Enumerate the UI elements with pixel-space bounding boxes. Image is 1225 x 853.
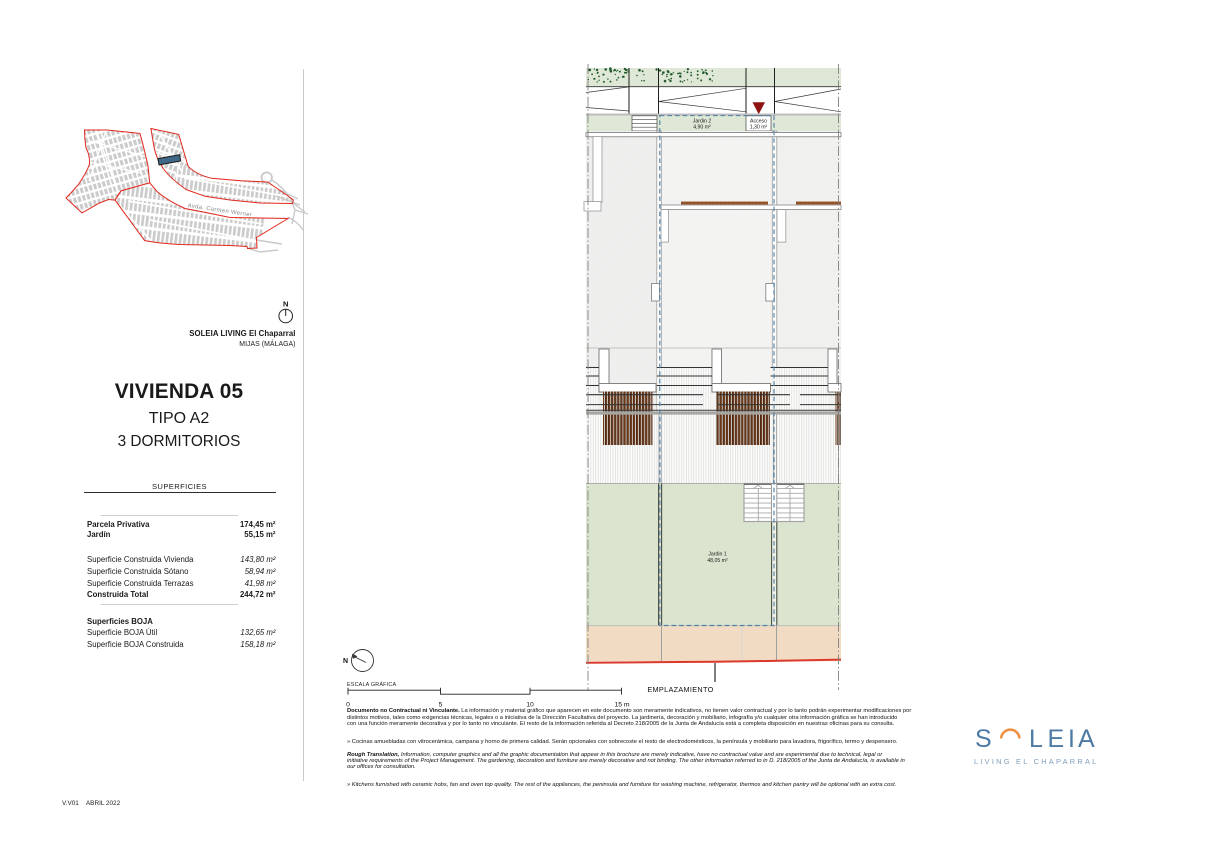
svg-text:N: N — [343, 658, 348, 665]
svg-text:48,05 m²: 48,05 m² — [707, 558, 728, 564]
svg-text:Acceso: Acceso — [750, 118, 767, 124]
svg-text:4,90 m²: 4,90 m² — [693, 125, 711, 131]
svg-text:Jardin 1: Jardin 1 — [708, 552, 727, 558]
svg-text:1,30 m²: 1,30 m² — [750, 125, 768, 131]
svg-text:Jardin 2: Jardin 2 — [693, 118, 712, 124]
svg-text:N: N — [283, 300, 288, 309]
